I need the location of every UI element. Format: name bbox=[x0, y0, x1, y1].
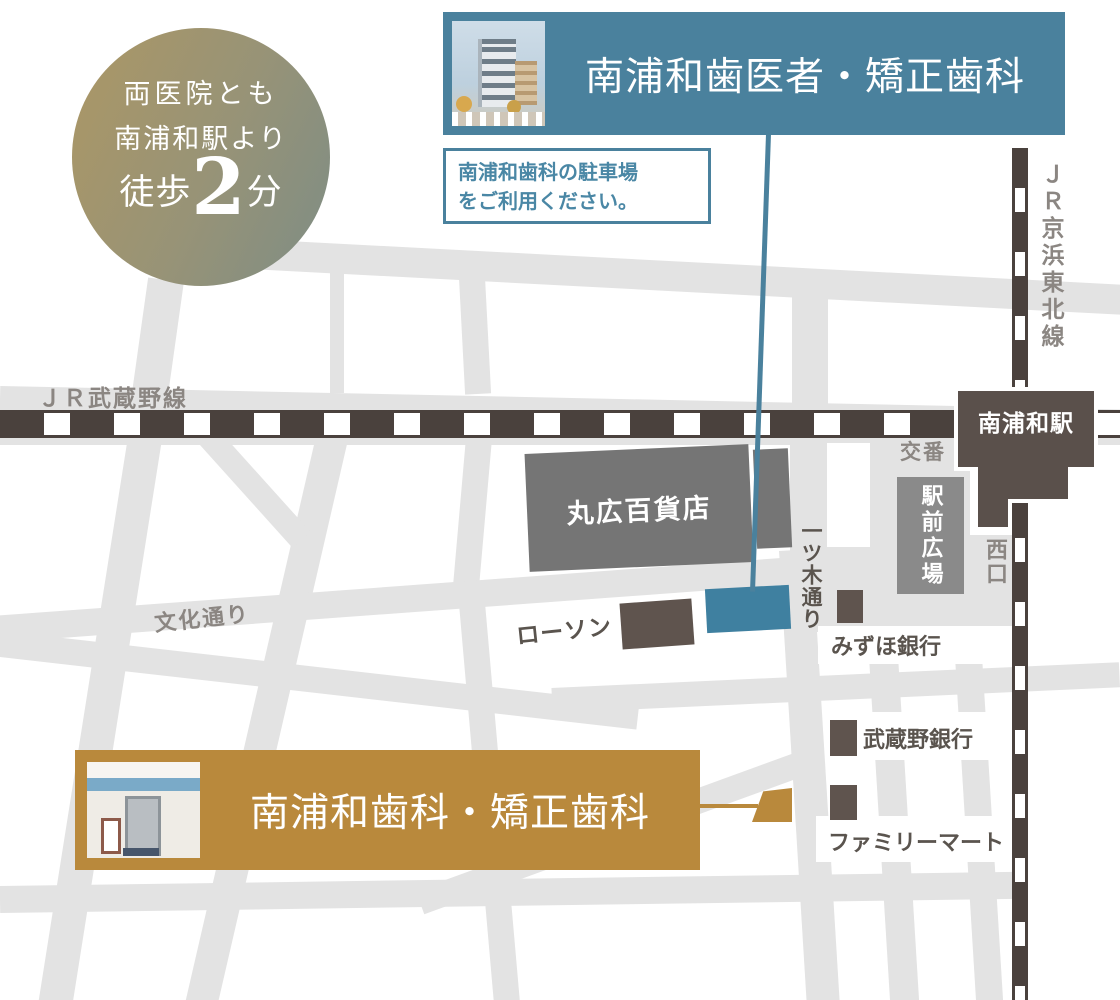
clinic-b-location-marker bbox=[752, 788, 792, 822]
road bbox=[229, 238, 1120, 316]
musashino-bank-building bbox=[830, 720, 857, 756]
station-name-label: 南浦和駅 bbox=[962, 404, 1090, 438]
photo-tower bbox=[478, 39, 516, 107]
photo-building bbox=[515, 61, 537, 105]
photo-crosswalk bbox=[452, 112, 545, 126]
photo-sandwich-board bbox=[101, 818, 121, 854]
walk-prefix: 徒歩 bbox=[119, 173, 191, 213]
road bbox=[330, 258, 344, 393]
clinic-a-name: 南浦和歯医者・矯正歯科 bbox=[545, 46, 1065, 102]
west-exit-label: 西口 bbox=[979, 538, 1011, 586]
jr-keihin-tohoku-line-track bbox=[1012, 148, 1028, 392]
maruhiro-label: 丸広百貨店 bbox=[566, 485, 713, 530]
clinic-a-location-marker bbox=[705, 585, 791, 633]
road bbox=[792, 295, 828, 415]
parking-note-line1: 南浦和歯科の駐車場 bbox=[458, 159, 696, 188]
police-box-label: 交番 bbox=[900, 436, 946, 466]
jr-keihin-tohoku-line-track bbox=[1012, 498, 1028, 1000]
badge-line1: 両医院とも bbox=[72, 72, 330, 111]
familymart-label: ファミリーマート bbox=[828, 825, 1004, 857]
photo-wall bbox=[87, 762, 200, 778]
musashino-bank-label: 武蔵野銀行 bbox=[863, 722, 973, 754]
access-map: 南浦和駅 駅前広場 丸広百貨店 ＪＲ武蔵野線 ＪＲ京浜東北線 交番 西口 一ツ木… bbox=[0, 0, 1120, 1000]
jr-musashino-line-label: ＪＲ武蔵野線 bbox=[38, 379, 188, 413]
road bbox=[36, 435, 162, 1000]
station-plaza-box: 駅前広場 bbox=[897, 477, 964, 594]
clinic-a-building-photo bbox=[452, 21, 545, 126]
photo-doormat bbox=[123, 848, 159, 856]
parking-note: 南浦和歯科の駐車場 をご利用ください。 bbox=[443, 148, 711, 224]
photo-tree bbox=[456, 96, 472, 112]
photo-signboard bbox=[87, 778, 200, 791]
building-block bbox=[827, 443, 870, 547]
familymart-building bbox=[830, 785, 857, 820]
parking-note-line2: をご利用ください。 bbox=[458, 188, 696, 217]
badge-walk-time: 徒歩2分 bbox=[72, 164, 330, 215]
walk-suffix: 分 bbox=[247, 173, 283, 213]
maruhiro-department-store: 丸広百貨店 bbox=[525, 444, 754, 572]
hitotsugi-street-label: 一ツ木通り bbox=[795, 520, 825, 630]
walk-time-badge: 両医院とも 南浦和駅より 徒歩2分 bbox=[72, 28, 330, 286]
lawson-label: ローソン bbox=[514, 607, 613, 651]
road bbox=[459, 275, 491, 394]
mizuho-bank-label: みずほ銀行 bbox=[831, 629, 941, 661]
jr-musashino-line-track bbox=[0, 410, 1120, 438]
clinic-a-banner[interactable]: 南浦和歯医者・矯正歯科 bbox=[443, 12, 1065, 135]
photo-door bbox=[125, 796, 161, 856]
clinic-b-banner[interactable]: 南浦和歯科・矯正歯科 bbox=[75, 750, 700, 870]
lawson-building bbox=[619, 599, 694, 650]
walk-number: 2 bbox=[191, 142, 246, 233]
mizuho-bank-building bbox=[837, 590, 863, 623]
jr-keihin-tohoku-line-label: ＪＲ京浜東北線 bbox=[1034, 162, 1068, 351]
station-plaza-label: 駅前広場 bbox=[915, 484, 947, 588]
road bbox=[199, 428, 311, 548]
road bbox=[551, 662, 1120, 713]
road bbox=[181, 434, 347, 1000]
clinic-b-name: 南浦和歯科・矯正歯科 bbox=[200, 782, 700, 838]
clinic-b-entrance-photo bbox=[87, 762, 200, 858]
clinic-b-connector-line bbox=[692, 804, 758, 808]
